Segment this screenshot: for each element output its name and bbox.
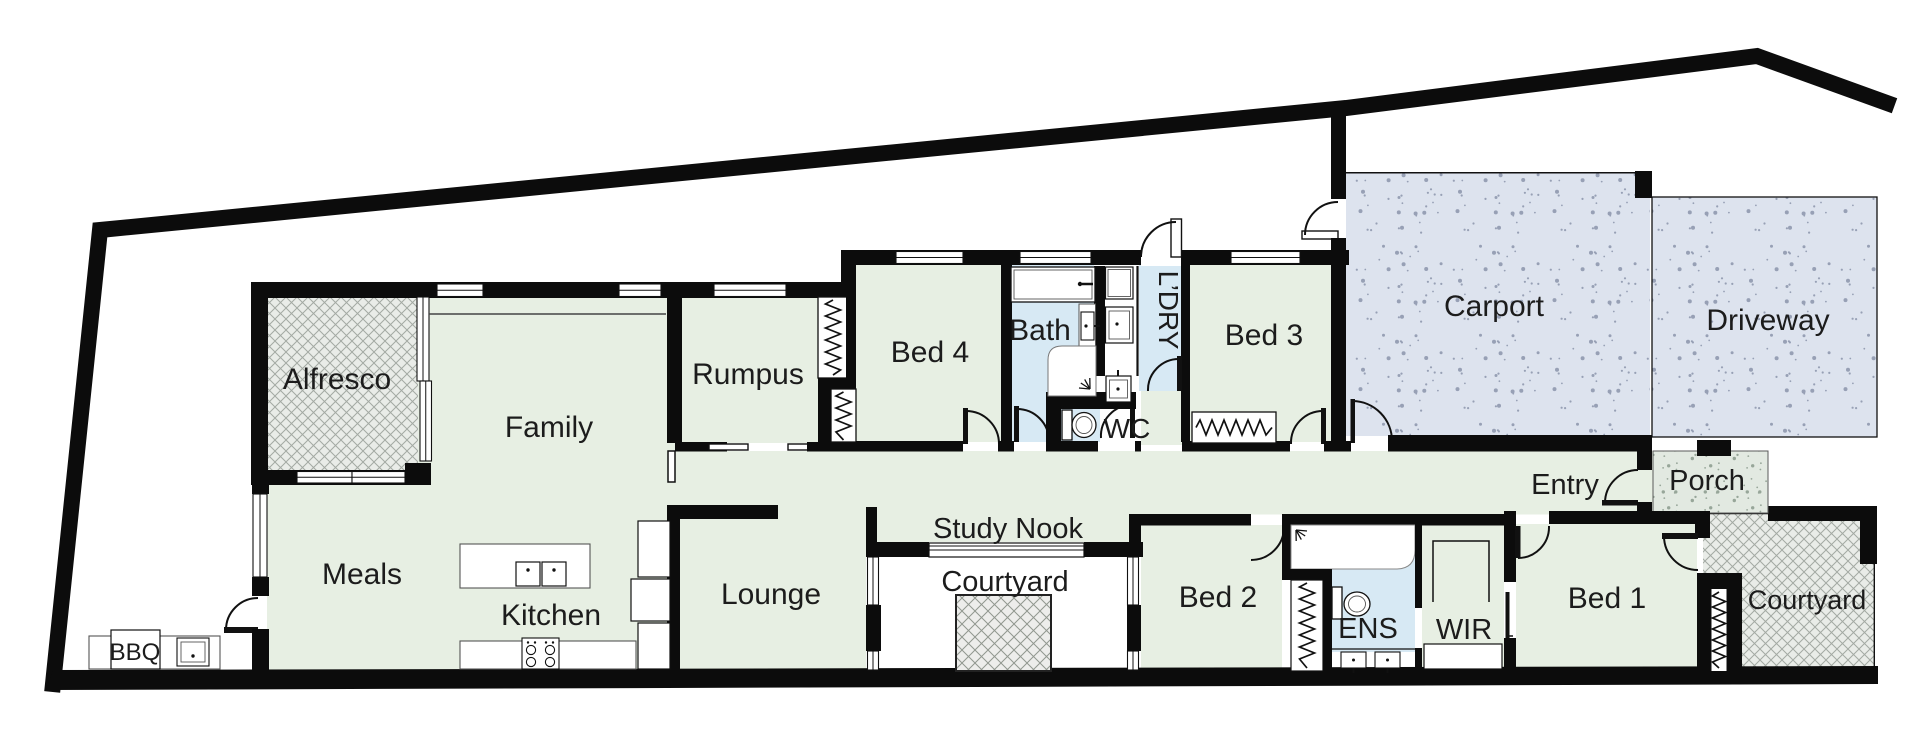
svg-text:Meals: Meals <box>322 558 402 591</box>
svg-text:ENS: ENS <box>1338 613 1398 645</box>
svg-text:Study Nook: Study Nook <box>933 513 1083 545</box>
svg-text:WIR: WIR <box>1436 614 1492 646</box>
svg-text:Family: Family <box>505 411 593 444</box>
svg-text:Entry: Entry <box>1531 469 1599 501</box>
svg-text:Driveway: Driveway <box>1706 304 1829 337</box>
svg-text:Bed 1: Bed 1 <box>1568 582 1646 615</box>
svg-text:Kitchen: Kitchen <box>501 599 601 632</box>
svg-text:BBQ: BBQ <box>110 639 161 666</box>
svg-text:Carport: Carport <box>1444 290 1545 323</box>
svg-text:Lounge: Lounge <box>721 578 821 611</box>
svg-text:WC: WC <box>1104 413 1151 444</box>
svg-text:Courtyard: Courtyard <box>1748 585 1867 615</box>
svg-text:Bed 4: Bed 4 <box>891 336 969 369</box>
svg-text:Alfresco: Alfresco <box>283 363 391 396</box>
svg-text:Rumpus: Rumpus <box>692 358 804 391</box>
svg-text:Courtyard: Courtyard <box>941 566 1068 598</box>
svg-text:Bed 3: Bed 3 <box>1225 319 1303 352</box>
svg-text:Porch: Porch <box>1669 465 1745 497</box>
svg-text:L’DRY: L’DRY <box>1153 271 1184 350</box>
svg-text:Bath: Bath <box>1009 314 1071 347</box>
svg-text:Bed 2: Bed 2 <box>1179 581 1257 614</box>
